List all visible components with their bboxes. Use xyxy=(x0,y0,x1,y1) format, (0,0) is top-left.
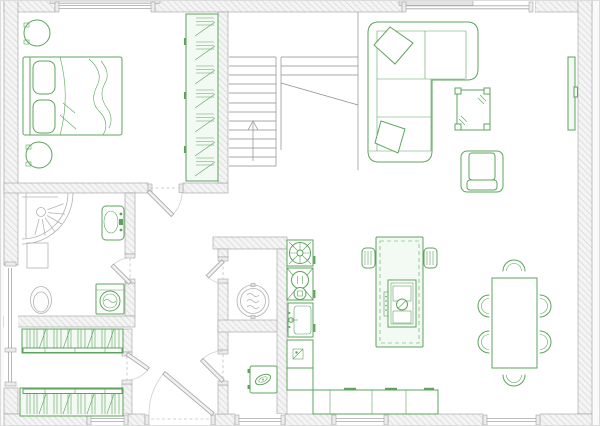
bar-stool xyxy=(362,248,375,268)
pillow xyxy=(33,61,55,94)
cooktop xyxy=(384,280,416,327)
toilet xyxy=(31,287,52,314)
kitchen-sink xyxy=(288,303,313,337)
double-bed xyxy=(23,57,122,135)
window-top-left xyxy=(50,0,160,12)
kitchen-counter-bottom xyxy=(313,388,438,414)
pillow xyxy=(33,100,55,133)
dishwasher-icon xyxy=(287,340,313,368)
floor-plan: floor-plan xyxy=(0,0,600,426)
washbasin xyxy=(102,206,124,240)
dining-table xyxy=(492,278,537,368)
coffee-table xyxy=(455,88,490,130)
bookshelf xyxy=(20,388,123,416)
window-top-right xyxy=(399,0,535,12)
nightstand xyxy=(26,142,52,168)
floor-plan-page: floor-plan xyxy=(0,0,600,426)
window-left xyxy=(4,262,18,386)
armchair xyxy=(461,151,503,192)
bar-stool xyxy=(424,248,437,268)
wardrobe xyxy=(184,14,218,181)
window-bottom-2 xyxy=(235,414,285,426)
bookshelf xyxy=(22,329,123,353)
extractor-fan-icon xyxy=(287,240,313,266)
window-bottom-4 xyxy=(483,414,540,426)
counter-segment xyxy=(287,368,313,390)
nightstand xyxy=(24,20,50,46)
oven-icon xyxy=(287,268,313,300)
washing-machine xyxy=(96,284,124,314)
window-bottom-3 xyxy=(332,414,388,426)
boiler xyxy=(248,366,278,393)
